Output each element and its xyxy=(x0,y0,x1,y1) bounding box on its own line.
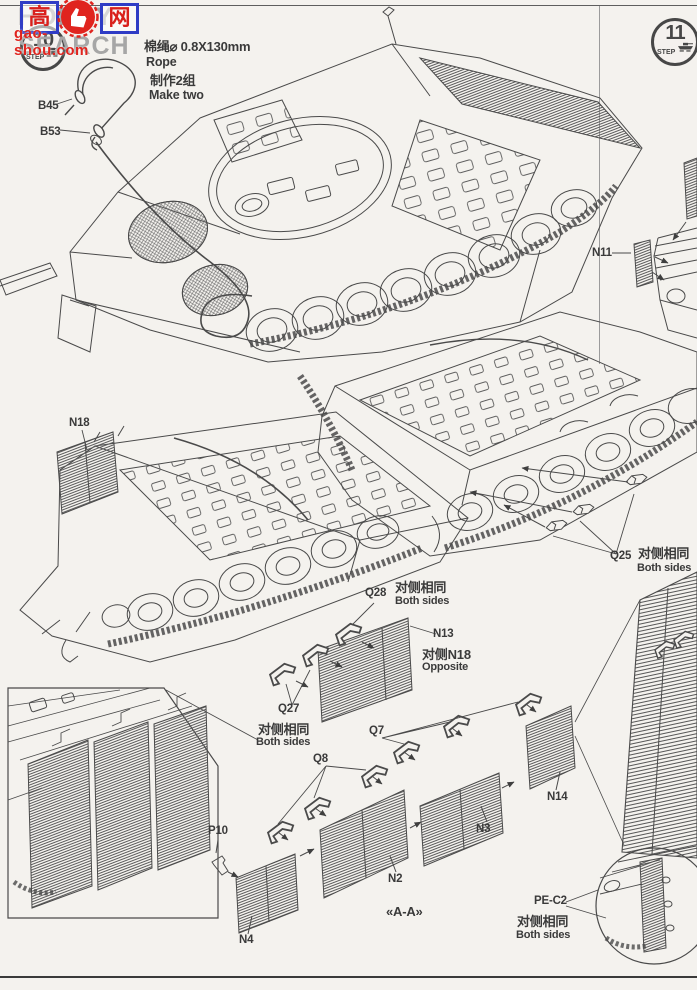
both-sides-note-en-pec2: Both sides xyxy=(516,929,570,941)
tank-icon xyxy=(677,39,694,57)
magnified-panel-drawing xyxy=(575,572,697,858)
both-sides-note-en-q28: Both sides xyxy=(395,595,449,607)
rope-qty-en-line: Make two xyxy=(149,88,204,102)
part-label-q27: Q27 xyxy=(278,703,299,715)
both-sides-note-en-q27: Both sides xyxy=(256,736,310,748)
rope-qty-cn-line: 制作2组 xyxy=(150,70,195,89)
part-label-b45: B45 xyxy=(38,100,59,112)
part-label-n11: N11 xyxy=(592,247,612,259)
both-sides-note-cn-pec2: 对侧相同 xyxy=(517,911,568,930)
part-label-n2: N2 xyxy=(388,873,402,885)
part-label-n13: N13 xyxy=(433,628,454,640)
both-sides-note-cn-q25: 对侧相同 xyxy=(638,543,689,562)
right-edge-part-drawing xyxy=(673,158,697,240)
rope-spec-line: 棉绳⌀ 0.8X130mm xyxy=(144,36,250,55)
part-label-n3: N3 xyxy=(476,823,490,835)
instruction-page: HOBBY SEARCH 高 网 gao-shou.com 10 STEP 11… xyxy=(0,0,697,990)
part-label-q25: Q25 xyxy=(610,550,631,562)
opposite-note-en: Opposite xyxy=(422,661,468,673)
illustration xyxy=(0,0,697,990)
part-label-n4: N4 xyxy=(239,934,253,946)
part-label-p10: P10 xyxy=(208,825,228,837)
part-label-n18: N18 xyxy=(69,417,90,429)
part-label-q28: Q28 xyxy=(365,587,386,599)
n11-part-drawing xyxy=(612,240,668,287)
q25-pins-drawing xyxy=(470,468,648,554)
both-sides-note-en-q25: Both sides xyxy=(637,562,691,574)
step-11-label: STEP xyxy=(657,49,675,56)
both-sides-note-cn-q28: 对侧相同 xyxy=(395,577,446,596)
rope-name-line: Rope xyxy=(146,55,176,69)
part-label-q8: Q8 xyxy=(313,753,328,765)
step-11-badge: 11 STEP xyxy=(651,18,697,66)
watermark-char-right: 网 xyxy=(100,3,139,34)
detail-inset-circle-drawing xyxy=(566,846,697,964)
section-aa-label: «A-A» xyxy=(386,904,423,919)
watermark-domain: gao-shou.com xyxy=(14,25,89,59)
detail-inset-box-drawing xyxy=(8,688,218,918)
hull-fragment-right-drawing xyxy=(654,228,697,338)
part-label-n14: N14 xyxy=(547,791,568,803)
part-label-b53: B53 xyxy=(40,126,61,138)
part-label-q7: Q7 xyxy=(369,725,384,737)
rope-drawing xyxy=(57,59,135,150)
part-label-pe-c2: PE-C2 xyxy=(534,895,567,907)
